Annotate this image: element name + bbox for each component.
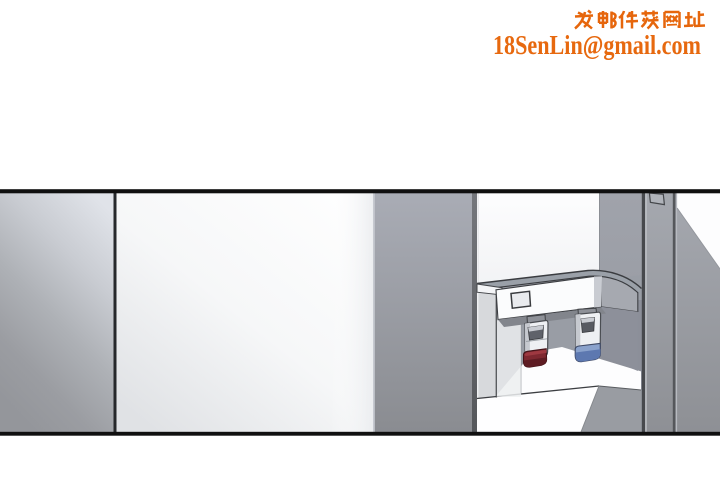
svg-text:18SenLin@gmail.com: 18SenLin@gmail.com (493, 30, 701, 60)
